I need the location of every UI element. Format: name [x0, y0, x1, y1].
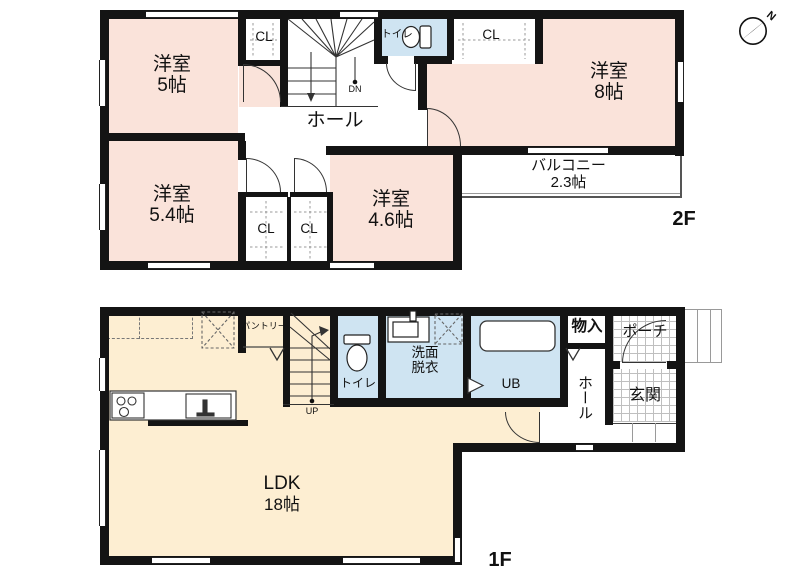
- window: [152, 557, 210, 564]
- room-label-bedroom8: 洋室 8帖: [559, 61, 659, 104]
- door-arc-bedroom46: [294, 158, 327, 192]
- window: [677, 62, 684, 102]
- room-ldk-fill-left: [108, 315, 330, 556]
- room-size: 18帖: [264, 495, 300, 514]
- compass-north-label: N: [764, 9, 778, 23]
- door-arc-bedroom54: [246, 158, 281, 192]
- wall: [100, 133, 245, 141]
- stairs-2f-arrowhead: [307, 93, 315, 102]
- closet-label-top-right: CL: [476, 27, 506, 42]
- room-label-entrance: 玄関: [612, 387, 678, 405]
- room-name: 洋室: [153, 54, 191, 75]
- wall: [100, 307, 109, 565]
- storage-opening-mark: [566, 348, 580, 360]
- room-label-porch: ポーチ: [612, 324, 678, 341]
- closet-label-top-left: CL: [249, 29, 279, 44]
- room-name: 洋室: [590, 61, 628, 82]
- window: [99, 184, 106, 230]
- wall: [463, 307, 471, 407]
- exterior-steps: [684, 309, 722, 363]
- room-size: 5帖: [157, 75, 187, 96]
- wall: [238, 10, 246, 66]
- window: [330, 262, 374, 269]
- wall: [453, 443, 685, 452]
- room-size: 5.4帖: [149, 205, 194, 226]
- room-label-balcony: バルコニー 2.3帖: [486, 158, 651, 192]
- door-arc-toilet2f: [386, 63, 416, 91]
- window: [99, 450, 106, 526]
- room-name-line2: 脱衣: [412, 360, 439, 375]
- room-label-toilet2f: トイレ: [380, 29, 414, 41]
- room-label-bedroom46: 洋室 4.6帖: [341, 189, 441, 232]
- wall: [287, 197, 291, 263]
- entrance-step-line: [632, 423, 633, 442]
- floor-label-1f: 1F: [476, 549, 524, 571]
- room-size: 8帖: [594, 82, 624, 103]
- stairs-dn-label: DN: [344, 84, 366, 94]
- wall: [563, 343, 608, 349]
- window: [576, 444, 593, 451]
- wall: [290, 192, 332, 197]
- kitchen-island-bar: [148, 420, 248, 426]
- wall: [238, 141, 246, 160]
- wall: [238, 192, 246, 263]
- sliding-window-balcony: [528, 147, 608, 154]
- room-ldk-fill-mid: [330, 406, 453, 556]
- wall: [418, 56, 427, 110]
- wall: [330, 307, 338, 407]
- room-label-toilet1f: トイレ: [336, 377, 380, 390]
- compass-icon: N: [740, 9, 778, 44]
- room-name: バルコニー: [531, 157, 606, 174]
- entrance-step-line: [655, 423, 656, 442]
- window: [99, 60, 106, 106]
- exterior-step-line: [697, 309, 698, 363]
- stairs-up-label: UP: [301, 406, 323, 416]
- floor-label-2f: 2F: [660, 208, 708, 230]
- window: [340, 11, 378, 18]
- entrance-step: [613, 423, 677, 442]
- wall: [605, 361, 620, 369]
- wall: [100, 307, 684, 316]
- wall: [667, 361, 685, 369]
- room-name-line1: 洗面: [412, 345, 439, 360]
- room-label-storage: 物入: [566, 318, 608, 335]
- room-label-ldk: LDK 18帖: [222, 473, 342, 516]
- wall: [330, 398, 568, 407]
- room-label-bedroom54: 洋室 5.4帖: [122, 184, 222, 227]
- window: [148, 262, 210, 269]
- window: [343, 557, 420, 564]
- room-label-bath: UB: [495, 376, 527, 391]
- room-label-bedroom5: 洋室 5帖: [122, 54, 222, 97]
- floorplan-canvas: N 洋室 5帖 洋室 8帖 洋室 5.4帖 洋室 4.6帖 ホール トイレ CL…: [0, 0, 800, 587]
- window: [146, 11, 238, 18]
- room-label-pantry: パントリー: [241, 321, 287, 331]
- room-label-hall2f: ホール: [285, 110, 385, 131]
- room-label-hall1f: ホール: [572, 364, 592, 430]
- balcony-inner-line: [461, 193, 680, 194]
- wall: [453, 146, 462, 270]
- wall: [535, 10, 543, 64]
- wall: [447, 10, 454, 60]
- kitchen-storage-dashed: [107, 313, 193, 339]
- window: [99, 358, 106, 391]
- room-name: LDK: [264, 473, 301, 494]
- room-name: 洋室: [372, 189, 410, 210]
- wall: [378, 307, 386, 407]
- wall: [327, 192, 333, 263]
- room-label-washroom: 洗面 脱衣: [395, 345, 455, 375]
- wall: [246, 192, 288, 197]
- closet-label-bottom-left: CL: [251, 221, 281, 236]
- exterior-step-line: [710, 309, 711, 363]
- closet-label-bottom-right: CL: [294, 221, 324, 236]
- room-size: 4.6帖: [368, 210, 413, 231]
- window: [454, 538, 461, 562]
- room-name: 洋室: [153, 184, 191, 205]
- kitchen-storage-divider: [139, 313, 140, 339]
- wall: [326, 146, 453, 155]
- room-size: 2.3帖: [551, 174, 587, 191]
- room-bedroom8-fill-upper: [543, 19, 675, 64]
- wall: [280, 10, 288, 107]
